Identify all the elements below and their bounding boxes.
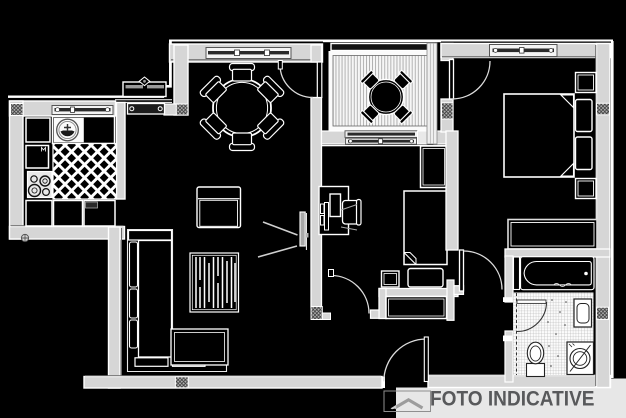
svg-text:FOTO INDICATIVE: FOTO INDICATIVE: [430, 387, 595, 411]
